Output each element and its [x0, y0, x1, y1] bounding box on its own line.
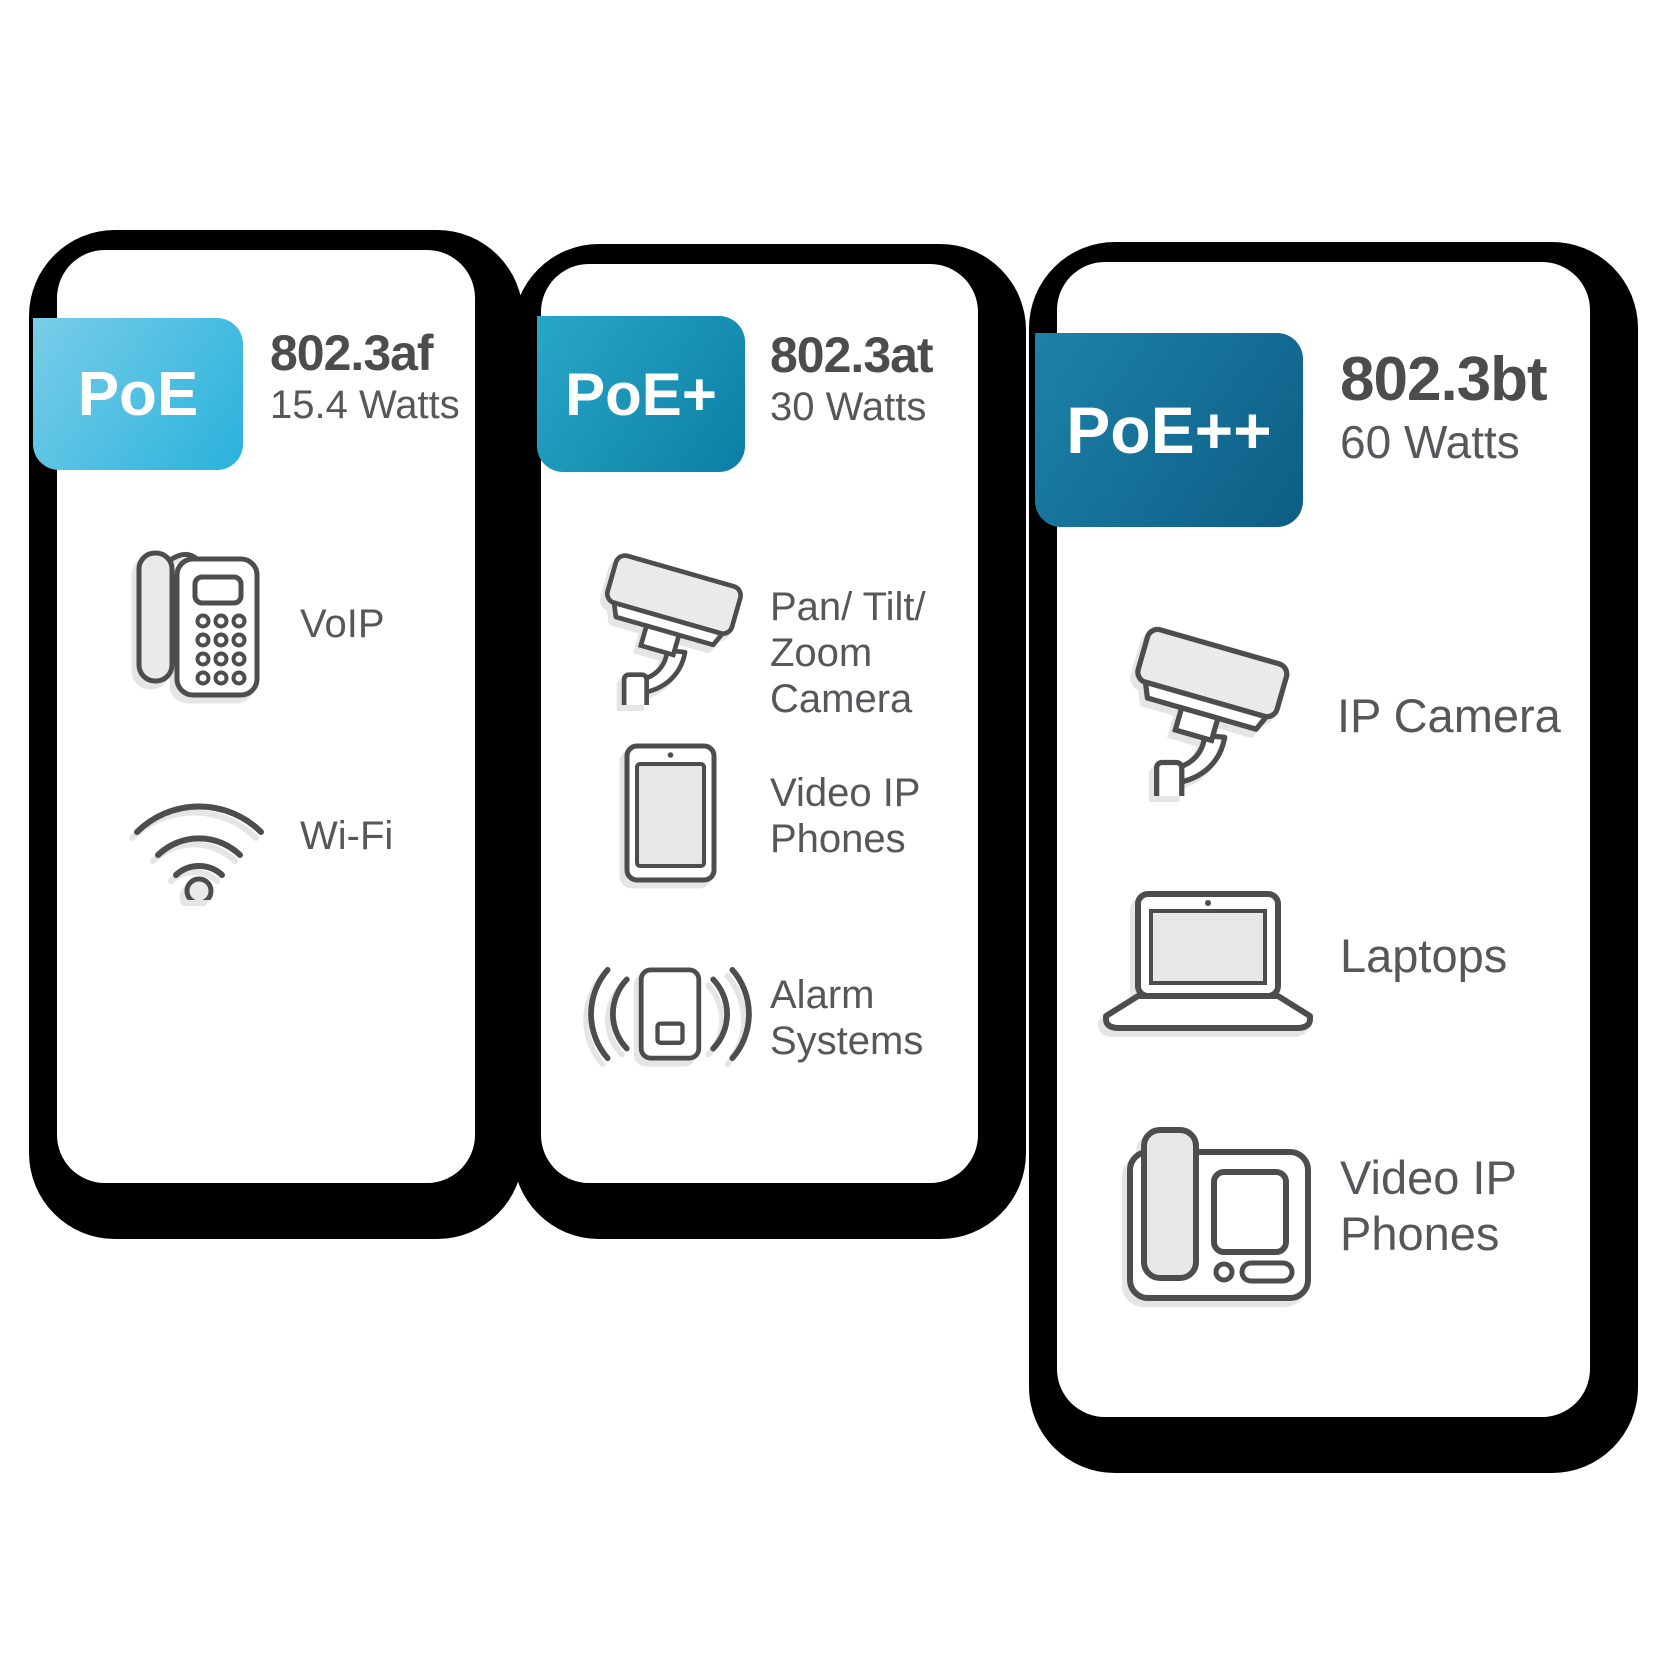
poe-plus-title-block: 802.3at 30 Watts — [770, 328, 933, 432]
voip-phone-icon — [133, 543, 263, 701]
laptop-icon — [1098, 890, 1318, 1035]
wifi-label: Wi-Fi — [300, 813, 393, 859]
poe-badge: PoE — [33, 318, 243, 470]
video-ip-phone-tablet-icon — [623, 742, 718, 884]
ip-camera-icon — [1124, 618, 1294, 796]
standard-name: 802.3bt — [1340, 346, 1547, 414]
wattage: 30 Watts — [770, 382, 933, 432]
laptops-label: Laptops — [1340, 928, 1507, 984]
standard-name: 802.3af — [270, 326, 460, 380]
voip-label: VoIP — [300, 601, 385, 647]
poe-plus-plus-title-block: 802.3bt 60 Watts — [1340, 346, 1547, 470]
poe-plus-badge: PoE+ — [537, 316, 745, 472]
standard-name: 802.3at — [770, 328, 933, 382]
video-ip-phone-icon — [1120, 1124, 1315, 1304]
poe-standards-infographic: PoE 802.3af 15.4 Watts VoIP Wi-Fi PoE+ 8… — [0, 0, 1668, 1668]
wifi-icon — [125, 772, 273, 900]
alarm-systems-label: Alarm Systems — [770, 972, 923, 1064]
video-ip-phones-label: Video IP Phones — [1340, 1150, 1517, 1262]
wattage: 60 Watts — [1340, 414, 1547, 470]
ip-camera-label: IP Camera — [1337, 688, 1561, 744]
wattage: 15.4 Watts — [270, 380, 460, 430]
poe-title-block: 802.3af 15.4 Watts — [270, 326, 460, 430]
ptz-camera-label: Pan/ Tilt/ Zoom Camera — [770, 584, 926, 722]
video-ip-phones-label: Video IP Phones — [770, 770, 921, 862]
ptz-camera-icon — [596, 545, 746, 705]
alarm-system-icon — [588, 966, 752, 1062]
poe-plus-plus-badge: PoE++ — [1035, 333, 1303, 527]
